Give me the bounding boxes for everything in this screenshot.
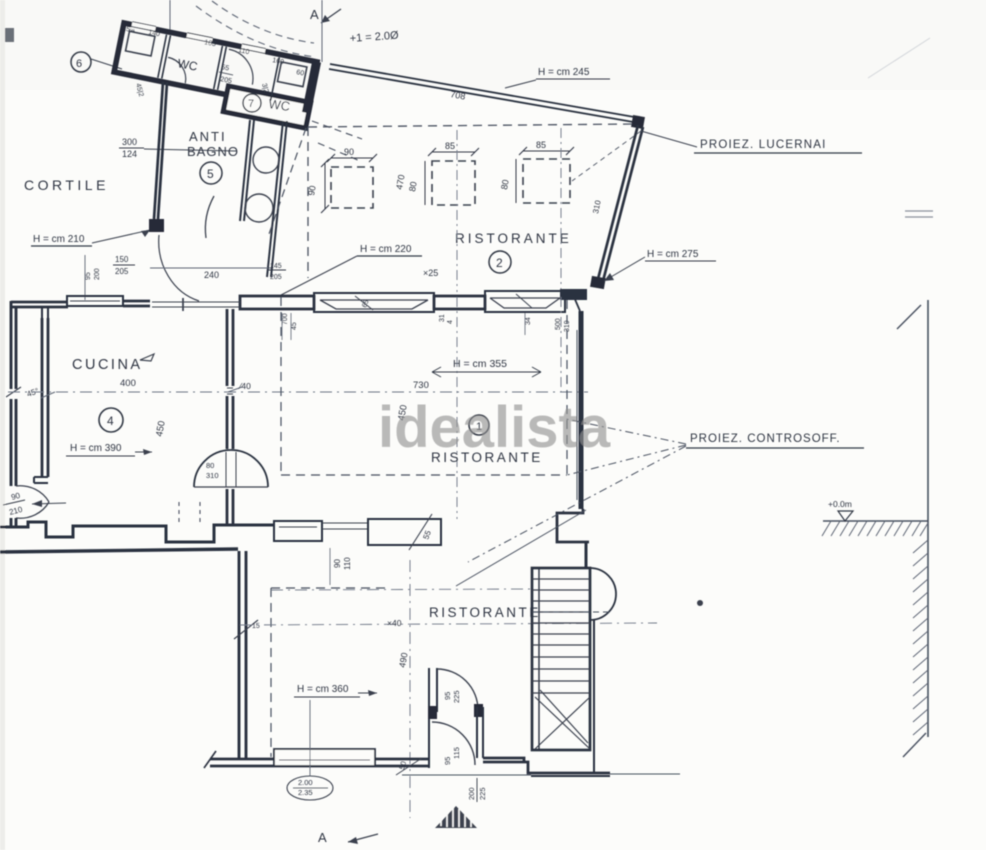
svg-text:RISTORANTE: RISTORANTE — [429, 605, 541, 620]
svg-text:H = cm 210: H = cm 210 — [33, 234, 85, 245]
svg-text:×25: ×25 — [423, 268, 438, 278]
svg-text:34: 34 — [525, 317, 532, 325]
svg-text:7: 7 — [248, 98, 254, 110]
svg-text:90: 90 — [344, 147, 354, 157]
svg-text:31: 31 — [439, 314, 446, 322]
svg-text:BAGNO: BAGNO — [187, 144, 239, 159]
svg-text:5: 5 — [207, 167, 214, 181]
svg-text:+0.0m: +0.0m — [828, 499, 852, 509]
svg-text:⁄40: ⁄40 — [238, 381, 251, 391]
svg-text:80: 80 — [206, 461, 214, 470]
svg-text:90: 90 — [333, 559, 342, 568]
svg-text:idealista: idealista — [378, 395, 611, 460]
svg-text:15: 15 — [252, 623, 260, 630]
svg-text:80: 80 — [499, 179, 511, 191]
svg-text:60: 60 — [296, 69, 305, 77]
svg-text:300: 300 — [122, 137, 137, 147]
svg-text:85: 85 — [536, 140, 546, 150]
svg-text:H = cm 245: H = cm 245 — [538, 67, 590, 78]
svg-text:PROIEZ. CONTROSOFF.: PROIEZ. CONTROSOFF. — [690, 433, 841, 445]
svg-text:110: 110 — [343, 557, 352, 570]
svg-text:225: 225 — [478, 787, 487, 800]
svg-text:400: 400 — [120, 378, 136, 389]
svg-text:H = cm 360: H = cm 360 — [297, 684, 349, 695]
svg-text:700: 700 — [282, 313, 289, 325]
svg-text:A: A — [310, 7, 319, 22]
svg-text:240: 240 — [204, 270, 219, 280]
svg-text:310: 310 — [206, 471, 219, 480]
svg-text:ANTI: ANTI — [189, 129, 227, 144]
svg-text:H = cm 220: H = cm 220 — [360, 244, 412, 255]
svg-text:H = cm 355: H = cm 355 — [453, 358, 507, 370]
svg-text:RISTORANTE: RISTORANTE — [455, 231, 572, 246]
svg-text:45: 45 — [291, 322, 298, 330]
svg-text:CUCINA: CUCINA — [72, 357, 143, 373]
svg-text:CORTILE: CORTILE — [24, 177, 109, 193]
svg-text:95: 95 — [85, 272, 92, 280]
svg-text:124: 124 — [122, 149, 137, 159]
svg-text:H = cm 275: H = cm 275 — [647, 249, 699, 260]
svg-text:150: 150 — [115, 255, 129, 264]
svg-text:2.00: 2.00 — [298, 778, 313, 787]
svg-text:115: 115 — [452, 747, 461, 759]
svg-text:6: 6 — [76, 58, 82, 70]
svg-text:80: 80 — [407, 181, 419, 193]
svg-text:H = cm 390: H = cm 390 — [70, 443, 122, 454]
svg-text:2.35: 2.35 — [298, 788, 313, 797]
svg-text:55: 55 — [221, 64, 230, 72]
svg-text:2: 2 — [496, 256, 503, 270]
svg-text:4: 4 — [447, 320, 454, 324]
svg-text:200: 200 — [467, 787, 476, 800]
svg-text:225: 225 — [452, 690, 461, 703]
svg-text:95: 95 — [443, 692, 452, 700]
svg-text:WC: WC — [268, 96, 292, 114]
svg-text:85: 85 — [445, 141, 455, 151]
svg-text:×40: ×40 — [387, 618, 402, 628]
svg-text:PROIEZ. LUCERNAI: PROIEZ. LUCERNAI — [700, 139, 827, 151]
svg-text:205: 205 — [115, 267, 129, 276]
svg-text:200: 200 — [94, 268, 101, 280]
svg-text:4: 4 — [107, 414, 114, 428]
svg-text:95: 95 — [443, 757, 452, 765]
svg-text:730: 730 — [413, 380, 429, 391]
svg-text:A: A — [318, 830, 327, 845]
svg-text:90: 90 — [306, 185, 318, 197]
